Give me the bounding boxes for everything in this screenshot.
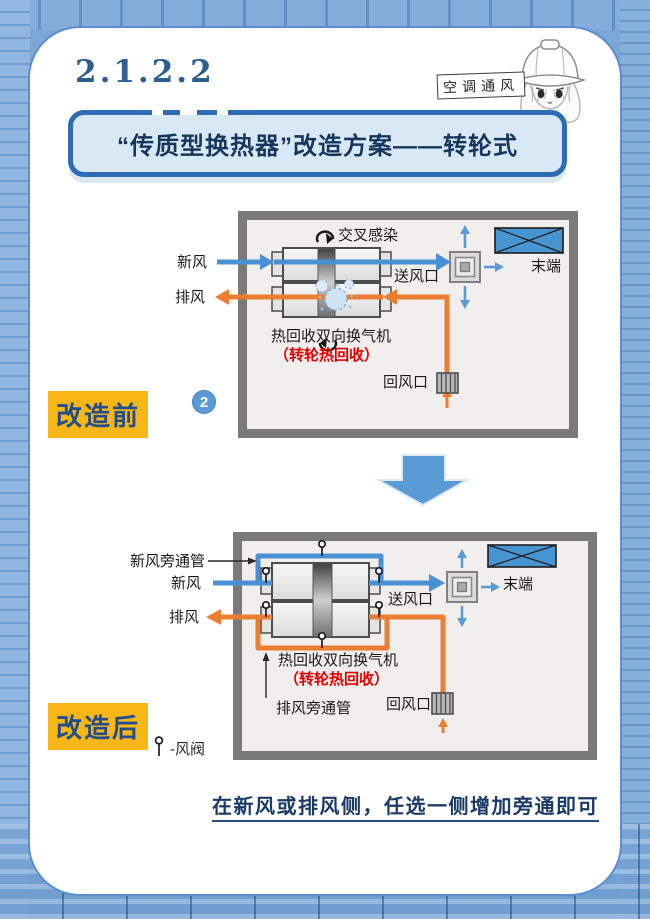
diagram-before: 新风 排风 交叉感染 送风口 末端 热回收双向换气机 （转轮热回收） 回风口 xyxy=(150,200,590,450)
label-return-inlet: 回风口 xyxy=(383,374,428,391)
supply-diffuser-icon xyxy=(450,252,480,282)
step-badge: 2 xyxy=(192,390,216,414)
background-cityscape-left xyxy=(0,0,30,919)
mascot-caption: 空调通风 xyxy=(437,71,526,99)
label-fresh-air: 新风 xyxy=(171,575,201,592)
damper-valve-icon xyxy=(152,733,166,759)
label-unit-subtitle: （转轮热回收） xyxy=(274,347,379,364)
label-fresh-air: 新风 xyxy=(177,254,207,271)
return-grille-icon xyxy=(437,373,458,393)
stage-label-after: 改造后 xyxy=(48,703,148,750)
label-unit-name: 热回收双向换气机 xyxy=(278,652,398,669)
stage-label-before: 改造前 xyxy=(48,391,148,438)
label-terminal: 末端 xyxy=(503,576,533,593)
down-arrow-icon xyxy=(370,452,475,510)
page-title: “传质型换热器”改造方案——转轮式 xyxy=(68,110,567,177)
label-supply-outlet: 送风口 xyxy=(388,591,433,608)
label-unit-name: 热回收双向换气机 xyxy=(271,328,391,345)
heat-exchanger-unit-icon xyxy=(261,563,380,637)
supply-diffuser-icon xyxy=(447,572,477,602)
label-return-inlet: 回风口 xyxy=(386,696,431,713)
label-terminal: 末端 xyxy=(531,258,561,275)
banner-dash-gap xyxy=(152,107,163,115)
label-cross-infection: 交叉感染 xyxy=(338,227,398,244)
terminal-icon xyxy=(488,545,556,567)
footer-note: 在新风或排风侧，任选一侧增加旁通即可 xyxy=(212,790,599,822)
label-fresh-air-bypass: 新风旁通管 xyxy=(130,553,205,570)
fresh-air-arrowhead xyxy=(429,574,445,592)
poster-page: { "header": { "section_number": "2.1.2.2… xyxy=(0,0,650,919)
terminal-icon xyxy=(495,228,563,253)
banner-dash-gap xyxy=(217,107,228,115)
valve-legend: -风阀 xyxy=(152,733,205,759)
return-grille-icon xyxy=(432,693,453,714)
exhaust-air-arrowhead xyxy=(206,609,221,625)
label-exhaust-bypass: 排风旁通管 xyxy=(276,700,351,717)
background-cityscape-right xyxy=(620,0,650,919)
label-supply-outlet: 送风口 xyxy=(394,268,439,285)
return-air-arrow xyxy=(438,718,448,733)
label-unit-subtitle: （转轮热回收） xyxy=(284,671,389,688)
section-number: 2.1.2.2 xyxy=(75,54,215,90)
banner-dash-gap xyxy=(180,107,197,115)
label-exhaust-air: 排风 xyxy=(169,609,199,626)
valve-legend-label: -风阀 xyxy=(170,738,205,759)
label-exhaust-air: 排风 xyxy=(175,289,205,306)
